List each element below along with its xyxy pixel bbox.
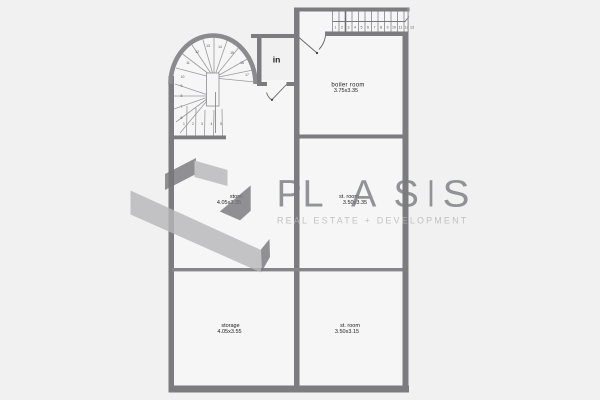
svg-text:4.05x3.55: 4.05x3.55 <box>217 329 241 335</box>
svg-text:7: 7 <box>374 26 376 30</box>
svg-text:3.50x3.15: 3.50x3.15 <box>335 329 359 335</box>
svg-text:P: P <box>277 174 302 216</box>
svg-text:16: 16 <box>240 61 244 65</box>
svg-text:5: 5 <box>220 122 222 126</box>
svg-text:17: 17 <box>245 73 249 77</box>
svg-text:13: 13 <box>410 26 414 30</box>
svg-text:12: 12 <box>195 50 199 54</box>
svg-text:10: 10 <box>392 26 396 30</box>
svg-text:9: 9 <box>387 26 389 30</box>
svg-text:5: 5 <box>361 26 363 30</box>
svg-text:S: S <box>394 174 419 216</box>
svg-text:11: 11 <box>399 26 403 30</box>
svg-text:2: 2 <box>341 26 343 30</box>
svg-text:11: 11 <box>186 61 190 65</box>
svg-text:7: 7 <box>181 105 183 109</box>
svg-text:S: S <box>443 174 470 216</box>
svg-text:1: 1 <box>183 122 185 126</box>
svg-text:8: 8 <box>181 94 183 98</box>
svg-text:in: in <box>273 55 281 65</box>
svg-text:13: 13 <box>206 44 210 48</box>
svg-text:I: I <box>427 174 435 216</box>
svg-text:L: L <box>303 174 324 216</box>
svg-text:3.75x3.35: 3.75x3.35 <box>334 88 358 94</box>
svg-text:REAL ESTATE + DEVELOPMENT: REAL ESTATE + DEVELOPMENT <box>277 216 468 226</box>
svg-text:14: 14 <box>218 45 222 49</box>
svg-text:6: 6 <box>181 116 183 120</box>
svg-text:8: 8 <box>380 26 382 30</box>
svg-text:4: 4 <box>354 26 356 30</box>
svg-text:15: 15 <box>230 51 234 55</box>
svg-text:1: 1 <box>335 26 337 30</box>
svg-text:10: 10 <box>181 75 185 79</box>
svg-text:3: 3 <box>348 26 350 30</box>
svg-text:3: 3 <box>201 122 203 126</box>
svg-text:9: 9 <box>181 84 183 88</box>
svg-text:4: 4 <box>211 122 213 126</box>
svg-text:A: A <box>351 174 377 216</box>
svg-text:2: 2 <box>192 122 194 126</box>
svg-text:6: 6 <box>367 26 369 30</box>
